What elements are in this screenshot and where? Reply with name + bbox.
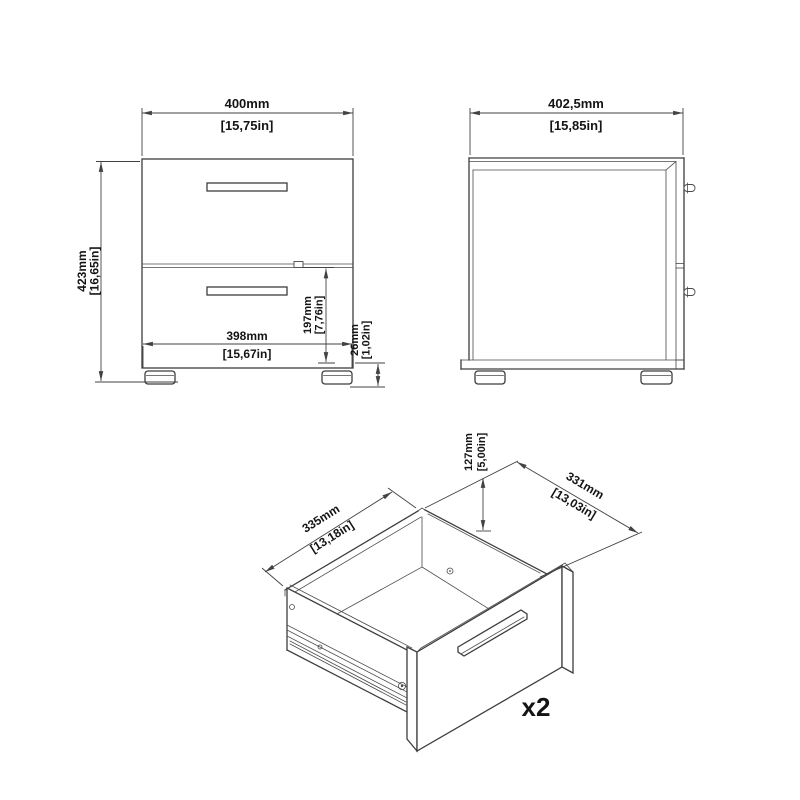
front-height-inch: [16,65in] [88, 247, 102, 296]
drawer-height-mm: 127mm [463, 433, 475, 471]
side-panel-screw [290, 605, 295, 610]
upper-drawer-handle [207, 183, 287, 191]
quantity-label: x2 [522, 692, 551, 722]
foot-height-mm: 26mm [349, 324, 361, 356]
drawer-front-height-mm: 197mm [302, 296, 314, 334]
drawer-height-inch: [5,00in] [476, 432, 488, 471]
dim-front-width: 400mm [15,75in] [142, 96, 353, 156]
dim-foot-height: 26mm [1,02in] [349, 320, 385, 387]
side-right-foot [641, 371, 672, 384]
lower-drawer-handle [207, 287, 287, 295]
dim-drawer-width: 331mm [13,03in] [517, 462, 642, 577]
front-panel-right-edge [562, 566, 573, 673]
furniture-dimension-diagram: 400mm [15,75in] 423mm [16,65in] 398mm [1… [0, 0, 800, 800]
drawer-front-panel [417, 566, 562, 751]
drawer-gap-detail [294, 262, 303, 268]
foot-height-inch: [1,02in] [361, 320, 373, 359]
front-width-inch: [15,75in] [221, 118, 274, 133]
front-right-foot [322, 371, 352, 384]
drawer-front-height-inch: [7,76in] [314, 295, 326, 334]
front-view: 400mm [15,75in] 423mm [16,65in] 398mm [1… [75, 96, 385, 387]
dim-drawer-height: 127mm [5,00in] [425, 432, 518, 531]
side-left-foot [475, 371, 505, 384]
side-depth-inch: [15,85in] [550, 118, 603, 133]
front-width-mm: 400mm [225, 96, 270, 111]
technical-drawing-page: 400mm [15,75in] 423mm [16,65in] 398mm [1… [0, 0, 800, 800]
upper-handle-peg [684, 183, 695, 193]
side-view: 402,5mm [15,85in] [461, 96, 695, 384]
front-inner-width-mm: 398mm [226, 329, 267, 343]
dim-side-depth: 402,5mm [15,85in] [470, 96, 683, 155]
drawer-isometric-view: 335mm [13,18in] 127mm [5,00in] 331mm [13… [262, 432, 642, 751]
lower-handle-peg [684, 287, 695, 297]
front-inner-width-inch: [15,67in] [223, 347, 272, 361]
drawer-slide-rail [287, 630, 409, 713]
front-panel-left-edge [407, 647, 417, 751]
dim-drawer-depth: 335mm [13,18in] [262, 488, 416, 586]
cabinet-side-outline [461, 158, 695, 384]
side-depth-mm: 402,5mm [548, 96, 604, 111]
